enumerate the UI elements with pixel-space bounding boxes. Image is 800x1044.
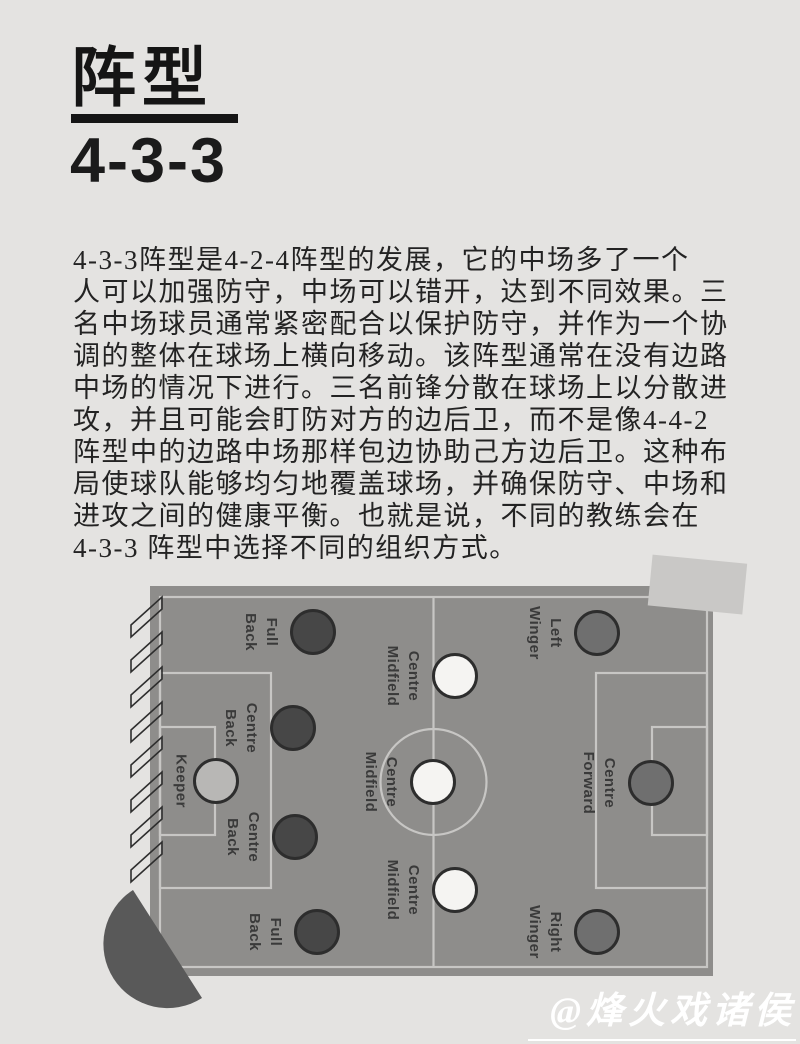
watermark-signature: @烽火戏诸侯 [528,980,796,1041]
player-label-centre-mid-1: Centre Midfield [382,646,424,707]
player-disc-centre-forward [628,760,674,806]
player-label-centre-mid-2: Centre Midfield [360,752,402,813]
player-label-centre-forward: Centre Forward [578,752,620,815]
player-disc-right-winger [574,909,620,955]
deco-rectangle [648,555,747,615]
player-disc-full-back-2 [294,909,340,955]
player-disc-centre-mid-3 [432,867,478,913]
player-disc-centre-back-2 [272,814,318,860]
article-page: 阵型 4-3-3 4-3-3阵型是4-2-4阵型的发展，它的中场多了一个 人可以… [0,0,800,1044]
player-label-full-back-1: Full Back [240,613,282,651]
player-label-right-winger: Right Winger [524,905,566,959]
player-disc-centre-mid-2 [410,759,456,805]
player-label-full-back-2: Full Back [244,913,286,951]
player-label-keeper: Keeper [171,754,192,808]
player-disc-centre-mid-1 [432,653,478,699]
player-label-left-winger: Left Winger [524,606,566,660]
player-label-centre-back-1: Centre Back [220,703,262,754]
player-disc-left-winger [574,610,620,656]
player-disc-centre-back-1 [270,705,316,751]
player-label-centre-back-2: Centre Back [222,812,264,863]
player-label-centre-mid-3: Centre Midfield [382,860,424,921]
player-disc-keeper [193,758,239,804]
player-disc-full-back-1 [290,609,336,655]
